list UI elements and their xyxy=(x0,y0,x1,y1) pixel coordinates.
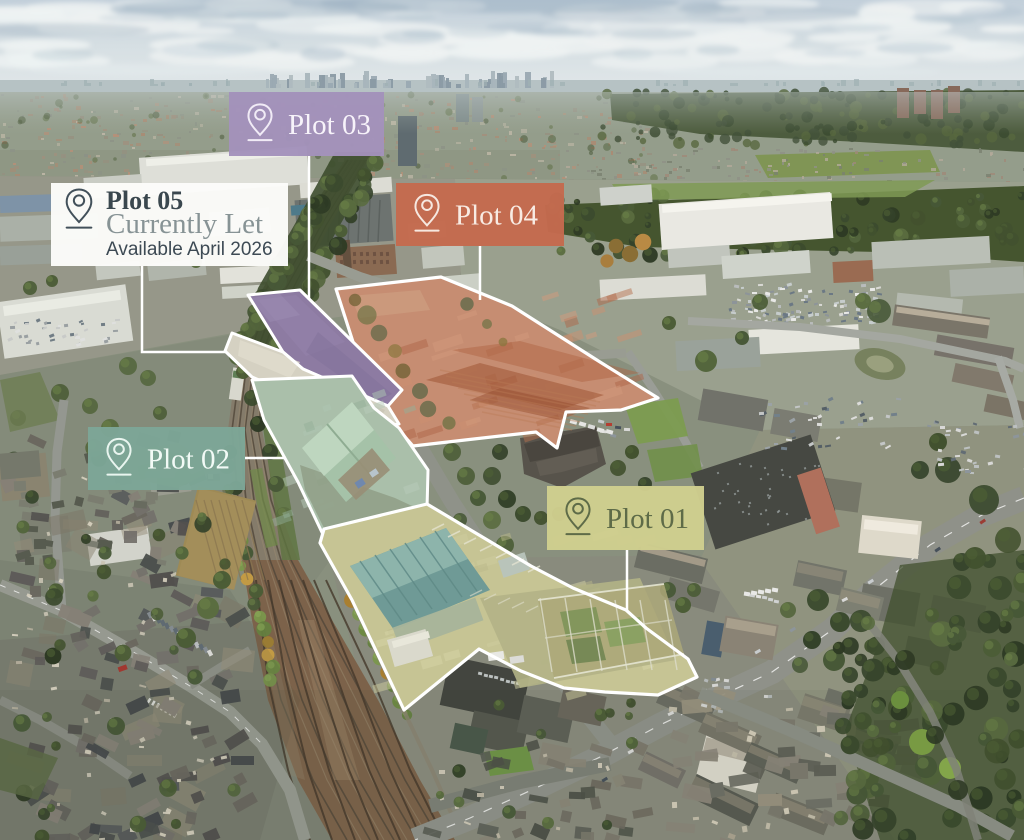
svg-text:Currently Let: Currently Let xyxy=(106,208,263,240)
svg-text:Plot 01: Plot 01 xyxy=(606,503,689,535)
svg-text:Plot 02: Plot 02 xyxy=(147,444,230,476)
svg-text:Available April 2026: Available April 2026 xyxy=(106,239,273,260)
svg-text:Plot 03: Plot 03 xyxy=(288,109,371,141)
svg-text:Plot 04: Plot 04 xyxy=(455,200,538,232)
